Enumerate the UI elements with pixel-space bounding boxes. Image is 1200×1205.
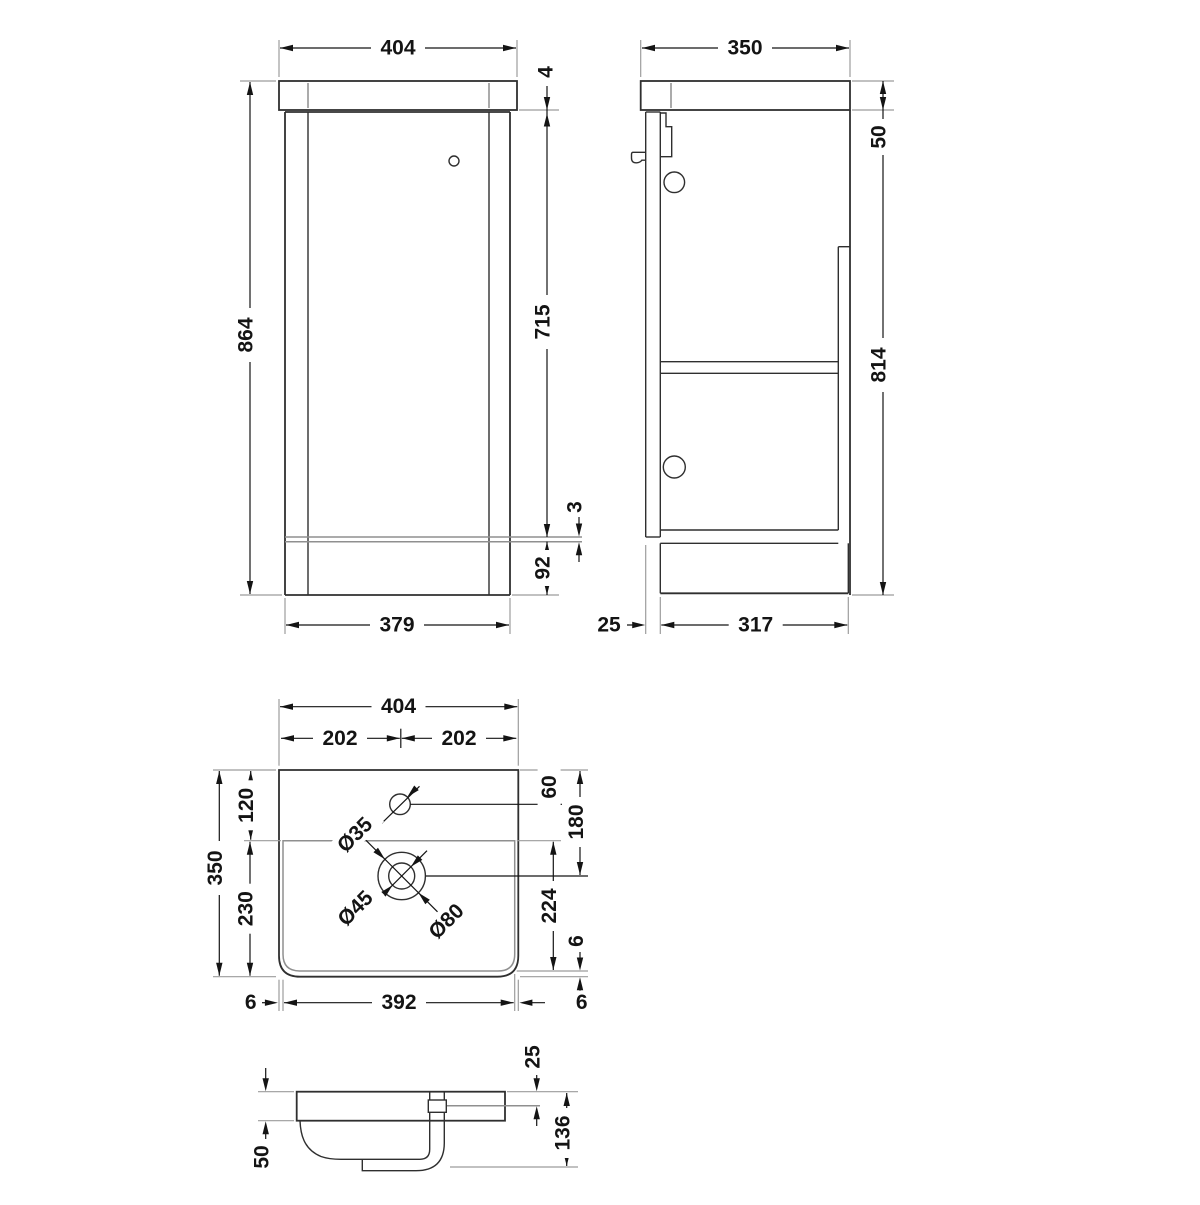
dim-plan-rim-right: 6 [576, 991, 588, 1014]
dim-side-carcass-depth: 317 [738, 614, 773, 637]
dim-plan-centre-right: 202 [441, 727, 476, 750]
front-elevation-view: 404 864 4 715 3 92 379 [234, 36, 587, 637]
basin-plan-view: Ø35 Ø45 Ø80 404 202 202 120 230 [203, 695, 591, 1015]
dim-section-bowl-depth: 50 [251, 1145, 274, 1168]
dim-plan-overall-depth: 350 [204, 850, 227, 885]
basin-bowl-outline [283, 841, 515, 971]
front-countertop [279, 81, 517, 110]
dim-section-overall-height: 136 [552, 1115, 575, 1150]
dim-plan-bowl-edge-gap: 6 [565, 935, 588, 947]
dim-plan-waste-centre: 180 [565, 804, 588, 839]
drawing-canvas: 404 864 4 715 3 92 379 [0, 0, 1200, 1200]
dim-front-plinth-height: 92 [532, 556, 555, 579]
side-hinge-top [664, 172, 685, 193]
tap-hole [390, 794, 411, 815]
dim-front-plinth-reveal: 3 [564, 501, 587, 513]
dim-section-rim-to-overflow: 25 [522, 1045, 545, 1069]
dim-plan-bowl-front-depth: 230 [235, 891, 258, 926]
dim-front-width-top: 404 [380, 37, 415, 60]
dim-side-door-thickness: 25 [597, 614, 621, 637]
dim-plan-bowl-width: 392 [381, 991, 416, 1014]
dim-plan-centre-left: 202 [322, 727, 357, 750]
dim-front-top-lip: 4 [535, 66, 558, 78]
dim-plan-tap-centre: 60 [538, 775, 561, 798]
side-hinge-bracket [660, 113, 671, 157]
side-door-knob [632, 152, 646, 163]
dim-plan-overall-width: 404 [381, 695, 416, 718]
dim-plan-rim-left: 6 [245, 991, 257, 1014]
dim-side-carcass-height: 814 [868, 347, 891, 382]
basin-section-view: 25 136 50 [250, 1039, 578, 1175]
dim-side-worktop-thickness: 50 [868, 125, 891, 148]
dim-front-body-height: 715 [532, 304, 555, 339]
dim-front-overall-height: 864 [235, 317, 258, 352]
dim-front-width-bottom: 379 [379, 614, 414, 637]
dim-plan-deck-depth: 120 [235, 788, 258, 823]
section-bowl-profile [300, 1092, 430, 1160]
dim-side-depth-top: 350 [727, 37, 762, 60]
side-elevation-view: 350 50 814 25 317 [591, 36, 894, 637]
dim-plan-bowl-length: 224 [538, 888, 561, 923]
front-door-knob [449, 156, 459, 166]
side-hinge-bottom [663, 456, 685, 478]
technical-drawing: 404 864 4 715 3 92 379 [0, 0, 1200, 1200]
section-overflow-fitting [428, 1100, 446, 1112]
side-countertop [641, 81, 850, 110]
